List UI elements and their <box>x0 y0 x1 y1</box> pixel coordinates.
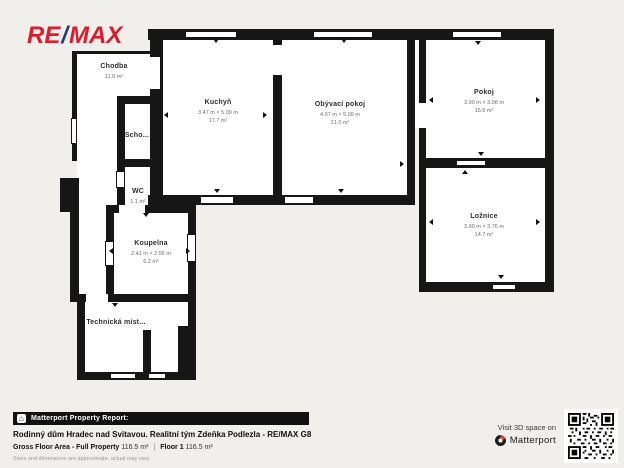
wall <box>70 208 79 302</box>
room-name: Koupelna <box>110 239 192 250</box>
floor-value: 116.5 m² <box>186 444 213 451</box>
wall <box>143 330 151 376</box>
visit-3d-block: Visit 3D space on Matterport <box>495 423 556 446</box>
visit-3d-text: Visit 3D space on <box>495 423 556 432</box>
wall <box>60 178 79 212</box>
matterport-brand: Matterport <box>495 435 556 446</box>
door-arrow <box>338 189 344 193</box>
qr-code-pattern <box>568 413 614 459</box>
door-arrow <box>146 207 152 211</box>
window <box>200 196 234 204</box>
wall <box>407 33 415 205</box>
door-opening <box>119 205 145 213</box>
house-icon: ⌂ <box>17 414 26 423</box>
door-arrow <box>112 303 118 307</box>
report-bar-label: Matterport Property Report: <box>31 415 129 422</box>
room-name: WC <box>117 187 159 198</box>
room-area: 17.7 m² <box>166 117 270 125</box>
stats-separator: | <box>153 444 155 451</box>
room-floor <box>85 302 188 372</box>
qr-code <box>564 409 618 463</box>
room-label-loznice: Ložnice 3.90 m × 3.76 m 14.7 m² <box>428 212 540 239</box>
room-dims: 3.47 m × 5.09 m <box>166 109 270 117</box>
window <box>116 171 125 188</box>
door-arrow <box>213 39 219 43</box>
window <box>110 373 136 379</box>
room-label-koupelna: Koupelna 2.41 m × 2.56 m 6.2 m² <box>110 239 192 266</box>
room-dims: 3.90 m × 3.98 m <box>428 99 540 107</box>
room-label-chodba: Chodba 11.8 m² <box>77 62 151 81</box>
window <box>148 373 166 379</box>
window <box>284 196 314 204</box>
room-area: 14.7 m² <box>428 231 540 239</box>
room-name: Ložnice <box>428 212 540 223</box>
report-bar: ⌂ Matterport Property Report: <box>13 412 309 425</box>
report-title: Rodinný dům Hradec nad Svitavou. Realitn… <box>13 430 463 439</box>
room-name: Technická míst... <box>68 318 164 329</box>
room-label-kuchyn: Kuchyň 3.47 m × 5.09 m 17.7 m² <box>166 98 270 125</box>
wall <box>77 294 85 380</box>
door-opening <box>273 45 282 75</box>
room-area: 1.1 m² <box>117 198 159 206</box>
door-arrow <box>143 213 149 217</box>
room-name: Chodba <box>77 62 151 73</box>
window <box>456 160 486 166</box>
room-label-pokoj: Pokoj 3.90 m × 3.98 m 15.5 m² <box>428 88 540 115</box>
room-dims: 4.07 m × 5.09 m <box>284 111 396 119</box>
wall <box>419 158 554 168</box>
report-disclaimer: Sizes and dimensions are approximate, ac… <box>13 456 149 462</box>
room-area: 15.5 m² <box>428 107 540 115</box>
room-name: Pokoj <box>428 88 540 99</box>
door-arrow <box>400 161 404 167</box>
floor-plan: Chodba 11.8 m² Scho... WC 1.1 m² Koupeln… <box>0 0 624 468</box>
wall <box>74 51 152 54</box>
room-area: 11.8 m² <box>77 73 151 81</box>
window <box>313 31 373 38</box>
wall <box>419 282 554 292</box>
door-arrow <box>214 189 220 193</box>
window <box>185 31 237 38</box>
room-label-technicka: Technická míst... <box>68 318 164 329</box>
window <box>452 31 502 38</box>
room-area: 21.0 m² <box>284 119 396 127</box>
room-name: Kuchyň <box>166 98 270 109</box>
door-opening <box>419 103 426 128</box>
door-arrow <box>478 152 484 156</box>
matterport-floorplan-report: RE/MAX <box>0 0 624 468</box>
room-name: Scho... <box>115 131 159 142</box>
door-arrow <box>498 275 504 279</box>
wall <box>178 326 196 380</box>
matterport-wordmark: Matterport <box>510 435 556 446</box>
floor-label: Floor 1 <box>160 444 183 451</box>
door-arrow <box>475 41 481 45</box>
room-area: 6.2 m² <box>110 258 192 266</box>
room-name: Obývací pokoj <box>284 100 396 111</box>
room-dims: 2.41 m × 2.56 m <box>110 250 192 258</box>
room-dims: 3.90 m × 3.76 m <box>428 223 540 231</box>
room-label-wc: WC 1.1 m² <box>117 187 159 206</box>
door-opening <box>86 294 108 302</box>
window <box>71 118 77 144</box>
room-label-schodiste: Scho... <box>115 131 159 142</box>
room-label-obyvaci-pokoj: Obývací pokoj 4.07 m × 5.09 m 21.0 m² <box>284 100 396 127</box>
room-floor <box>79 205 106 294</box>
gfa-value: 116.5 m² <box>121 444 148 451</box>
report-stats: Gross Floor Area - Full Property116.5 m²… <box>13 444 213 451</box>
gfa-label: Gross Floor Area - Full Property <box>13 444 119 451</box>
matterport-icon <box>495 435 506 446</box>
door-arrow <box>462 170 468 174</box>
wall <box>188 294 196 334</box>
window <box>492 284 516 290</box>
door-opening <box>150 57 160 89</box>
door-arrow <box>341 39 347 43</box>
